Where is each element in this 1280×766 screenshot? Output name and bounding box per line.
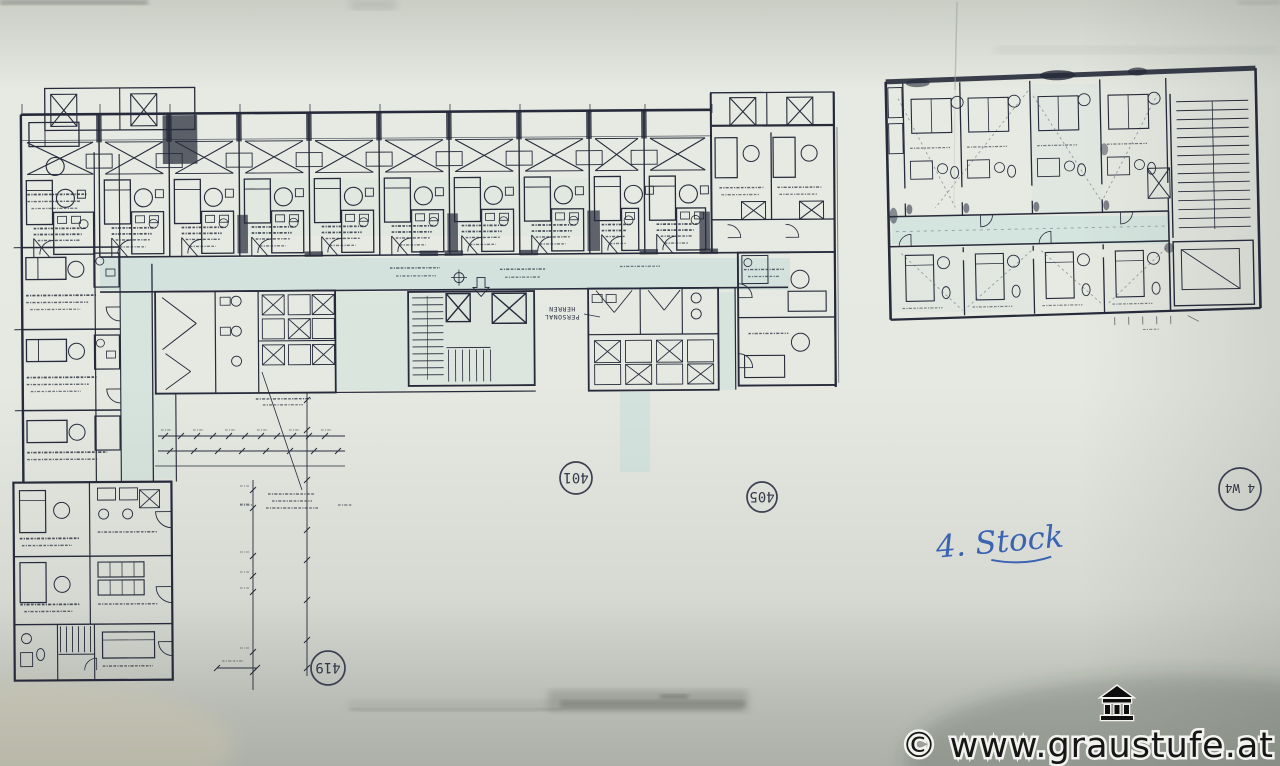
floorplan-photo: 401 405 419 4 W4 PERSONAL HERREN 4. Stoc… [0,0,1280,766]
room-number-419-text: 419 [315,659,340,675]
right-shading [1080,0,1280,766]
personal-herren-label: PERSONAL HERREN [544,305,579,321]
personal-line2: HERREN [549,305,575,313]
floorplan-canvas: 401 405 419 4 W4 PERSONAL HERREN 4. Stoc… [0,0,1280,766]
room-number-405-text: 405 [749,488,774,504]
room-number-401-text: 401 [563,469,588,485]
personal-line1: PERSONAL [544,313,579,321]
room-number-4w4-text: 4 W4 [1225,481,1255,496]
watermark-text: © www.graustufe.at [902,726,1274,766]
